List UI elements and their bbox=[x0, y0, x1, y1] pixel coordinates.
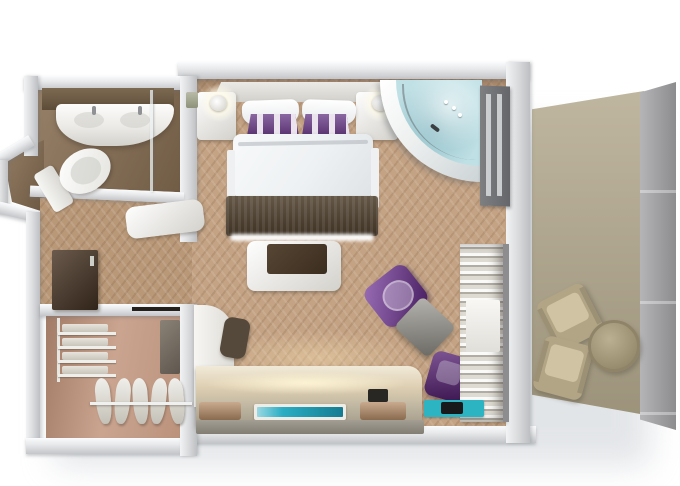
balcony-area bbox=[0, 0, 680, 486]
suite-floorplan bbox=[0, 0, 680, 486]
lounge-chair-2 bbox=[532, 334, 595, 401]
lounge-2-cushion bbox=[544, 343, 585, 383]
round-table bbox=[588, 320, 640, 372]
